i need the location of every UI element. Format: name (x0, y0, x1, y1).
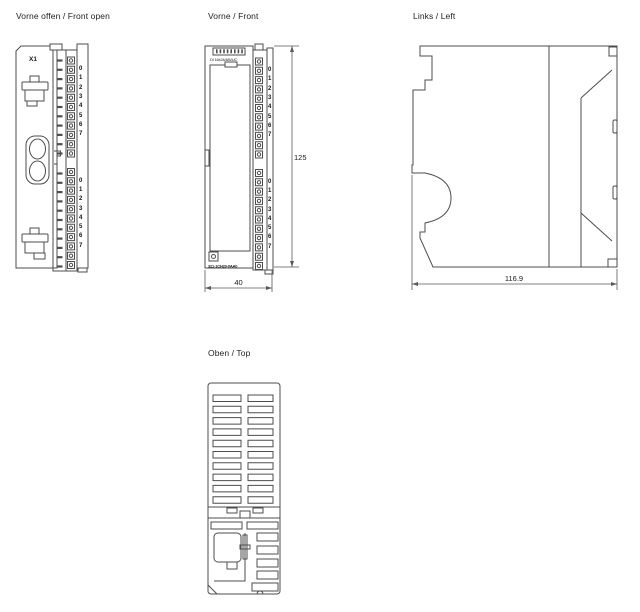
hinge-cutouts (26, 136, 49, 184)
channel-number: 2 (268, 85, 278, 94)
channel-number: 0 (268, 178, 278, 187)
dimension-width: 40 (205, 270, 272, 292)
channel-number: 5 (79, 112, 89, 121)
channel-number: 3 (268, 206, 278, 215)
channel-number: 1 (79, 74, 89, 83)
screw-terminals (68, 57, 75, 269)
channel-number: 1 (79, 186, 89, 195)
channel-number: 0 (268, 66, 278, 75)
screw-terminals (256, 58, 263, 270)
channel-numbers-bottom: 01234567 (268, 178, 278, 252)
terminal-strip (253, 44, 267, 270)
door-top-slot (225, 62, 237, 67)
rail-hook-top (609, 47, 617, 56)
top-tab (50, 44, 62, 50)
channel-number: 6 (268, 233, 278, 242)
dimension-drawing-page: Vorne offen / Front open Vorne / Front L… (0, 0, 640, 612)
ground-screw (209, 252, 218, 261)
module-front: DI 16x24/48VUC 321-1CH20-0AA0 (205, 46, 253, 269)
channel-numbers-top: 01234567 (79, 65, 89, 139)
channel-number: 4 (268, 215, 278, 224)
top-housing (208, 383, 280, 594)
channel-number: 7 (79, 242, 89, 251)
channel-number: 7 (268, 243, 278, 252)
rail-hook-bottom (608, 259, 617, 267)
channel-number: 1 (268, 75, 278, 84)
channel-number: 3 (79, 205, 89, 214)
front-door (210, 65, 250, 251)
channel-number: 2 (79, 195, 89, 204)
side-profile (412, 46, 617, 267)
din-rail-profile (581, 47, 617, 267)
channel-number: 0 (79, 65, 89, 74)
top-latch (22, 76, 48, 106)
channel-number: 6 (79, 232, 89, 241)
order-number-label: 321-1CH20-0AA0 (208, 264, 238, 269)
channel-number: 7 (268, 131, 278, 140)
front-drawing: DI 16x24/48VUC 321-1CH20-0AA0 (200, 40, 318, 294)
view-title-top: Oben / Top (208, 348, 250, 358)
corner-chamfer (208, 585, 217, 594)
rail-slot-upper (613, 120, 617, 133)
led-indicator-strip (213, 48, 245, 55)
channel-number: 5 (268, 113, 278, 122)
view-title-front: Vorne / Front (208, 11, 258, 21)
left-side-drawing: 116.9 (405, 40, 635, 292)
dimension-depth: 116.9 (412, 175, 617, 290)
door-hinge-bump (205, 150, 209, 166)
clip-right (253, 508, 263, 513)
channel-number: 2 (268, 196, 278, 205)
channel-number: 6 (268, 122, 278, 131)
slot-row-right (247, 522, 278, 529)
channel-number: 3 (79, 93, 89, 102)
dimension-height: 125 (274, 46, 307, 267)
dimension-width-label: 40 (234, 278, 242, 287)
rear-slots (257, 533, 278, 579)
channel-numbers-bottom: 01234567 (79, 177, 89, 251)
vent-slots (213, 395, 273, 503)
slot-row-left (211, 522, 242, 529)
clip-center (240, 511, 250, 518)
clip-left (227, 508, 237, 513)
channel-number: 7 (79, 130, 89, 139)
channel-number: 4 (79, 214, 89, 223)
wiring-strip (53, 50, 66, 271)
bottom-latch (22, 228, 48, 259)
view-title-left: Links / Left (413, 11, 455, 21)
channel-number: 4 (79, 102, 89, 111)
channel-number: 5 (79, 223, 89, 232)
dimension-height-label: 125 (294, 153, 307, 162)
channel-number: 6 (79, 121, 89, 130)
dimension-depth-label: 116.9 (505, 274, 523, 283)
channel-number: 4 (268, 103, 278, 112)
terminal-block (66, 50, 77, 271)
channel-number: 0 (79, 177, 89, 186)
strip-top-tab (255, 44, 263, 50)
channel-number: 3 (268, 94, 278, 103)
channel-number: 2 (79, 84, 89, 93)
module-type-label: DI 16x24/48VUC (210, 57, 238, 62)
view-title-front-open: Vorne offen / Front open (16, 11, 110, 21)
channel-number: 1 (268, 187, 278, 196)
top-drawing (205, 380, 285, 598)
bus-connector-compartment (214, 533, 245, 581)
connector-x1-label: X1 (29, 56, 37, 63)
bottom-slot (252, 583, 278, 591)
channel-numbers-top: 01234567 (268, 66, 278, 140)
channel-number: 5 (268, 224, 278, 233)
module-body: X1 (16, 44, 62, 268)
rail-slot-lower (613, 186, 617, 199)
bottom-foot (78, 268, 87, 272)
